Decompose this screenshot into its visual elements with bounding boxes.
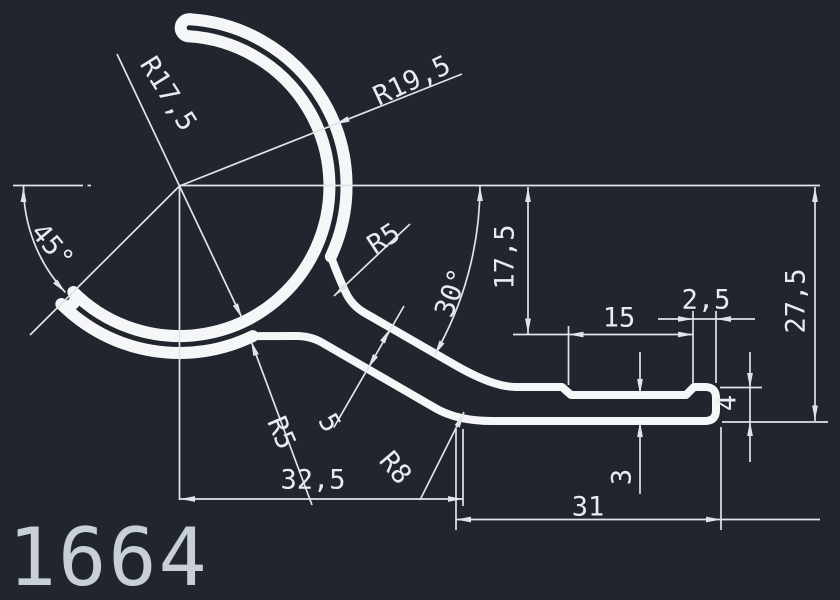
label-height-neck: 17,5	[490, 224, 521, 289]
arrow-2-5-right	[716, 316, 731, 322]
arrow-17-5-bottom	[525, 319, 531, 334]
arrow-27-5-top	[812, 187, 818, 202]
label-radius-outer: R19,5	[369, 50, 456, 112]
label-lip-width: 2,5	[682, 285, 731, 316]
label-radius-neck: R5	[362, 217, 406, 261]
label-base-thickness: 3	[607, 469, 638, 485]
arrow-4-top	[747, 373, 753, 388]
label-lip-height: 4	[712, 395, 743, 411]
cad-drawing-canvas: R17,5 R19,5 45° R5 30° 17,5 15 2,5 27,5 …	[0, 0, 840, 600]
arrow-5-bottom	[368, 354, 378, 368]
arrow-15-right	[678, 332, 693, 338]
tail-outline	[253, 257, 716, 421]
arrow-30-top	[477, 186, 483, 201]
label-base-length: 31	[572, 492, 605, 523]
label-radius-inner: R17,5	[133, 51, 202, 136]
arrow-17-5-top	[525, 187, 531, 202]
arrow-31-left	[456, 517, 471, 523]
arrow-31-right	[706, 517, 721, 523]
cad-drawing: R17,5 R19,5 45° R5 30° 17,5 15 2,5 27,5 …	[0, 0, 840, 600]
ring-cap-top	[181, 19, 190, 36]
arrow-32-5-left	[180, 496, 195, 502]
label-tail-offset: 32,5	[280, 465, 345, 496]
arrow-r5-bottom	[251, 341, 259, 356]
arrow-4-bottom	[747, 421, 753, 436]
arrow-15-left	[569, 332, 584, 338]
arrow-5-top	[380, 329, 390, 343]
label-groove-width: 15	[603, 303, 636, 334]
arrow-45-bottom	[53, 279, 65, 292]
arrow-r17-5	[233, 303, 242, 318]
label-radius-heel: R8	[373, 446, 418, 491]
label-angle-opening: 45°	[24, 217, 79, 274]
arrow-27-5-bottom	[812, 406, 818, 421]
label-tail-thickness: 5	[312, 408, 347, 438]
dimension-labels: R17,5 R19,5 45° R5 30° 17,5 15 2,5 27,5 …	[24, 50, 811, 523]
drawing-number: 1664	[8, 511, 209, 600]
label-angle-tail: 30°	[429, 265, 475, 321]
label-height-total: 27,5	[781, 268, 812, 333]
label-radius-joint: R5	[260, 412, 301, 454]
ring-cap-bottom-left	[61, 292, 75, 306]
arrow-45-top	[21, 187, 27, 202]
arrow-2-5-left	[678, 316, 693, 322]
